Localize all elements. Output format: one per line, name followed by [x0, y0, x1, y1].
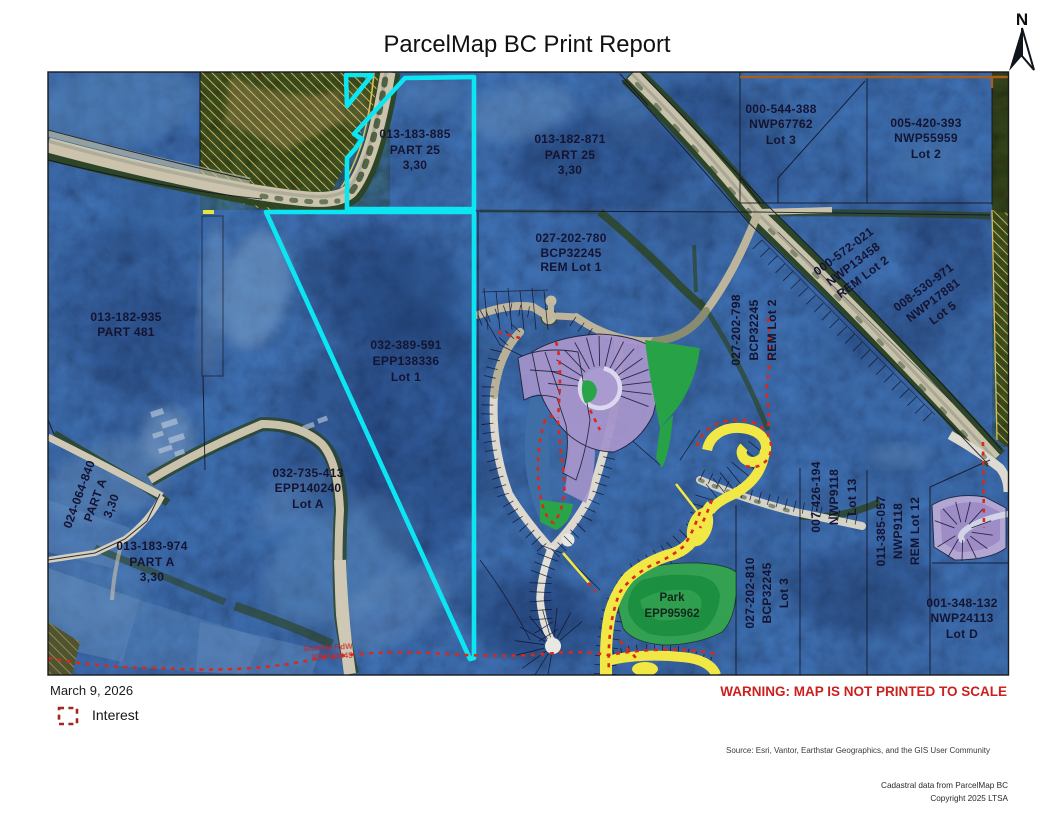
svg-text:001-348-132: 001-348-132 [926, 596, 997, 610]
svg-text:011-385-057: 011-385-057 [874, 496, 888, 567]
svg-text:BCP32245: BCP32245 [540, 246, 601, 260]
svg-text:EPP140240: EPP140240 [275, 481, 342, 495]
svg-text:Copyright 2025 LTSA: Copyright 2025 LTSA [930, 794, 1008, 803]
svg-text:Lot 2: Lot 2 [911, 147, 941, 161]
svg-text:027-202-798: 027-202-798 [729, 294, 743, 365]
svg-text:Lot D: Lot D [946, 627, 978, 641]
svg-text:Cadastral data from ParcelMap: Cadastral data from ParcelMap BC [881, 781, 1008, 790]
svg-text:Interest: Interest [92, 707, 139, 723]
svg-text:PART 25: PART 25 [545, 148, 596, 162]
svg-text:ParcelMap BC Print Report: ParcelMap BC Print Report [384, 31, 671, 58]
svg-text:NWP67762: NWP67762 [749, 117, 813, 131]
svg-text:013-183-885: 013-183-885 [379, 127, 450, 141]
svg-text:EPP95962: EPP95962 [645, 608, 700, 620]
svg-text:PART 481: PART 481 [97, 325, 155, 339]
svg-text:PART A: PART A [129, 555, 174, 569]
svg-text:EPP138336: EPP138336 [373, 354, 440, 368]
svg-text:NWP9118: NWP9118 [827, 469, 841, 525]
svg-text:013-182-935: 013-182-935 [90, 310, 161, 324]
svg-text:Lot 13: Lot 13 [845, 478, 859, 515]
svg-text:013-183-974: 013-183-974 [116, 539, 187, 553]
svg-text:000-544-388: 000-544-388 [745, 102, 816, 116]
svg-text:Lot 3: Lot 3 [766, 133, 796, 147]
svg-text:REM Lot 2: REM Lot 2 [765, 299, 779, 360]
svg-text:032-735-413: 032-735-413 [272, 466, 343, 480]
svg-text:WARNING: MAP IS NOT PRINTED TO: WARNING: MAP IS NOT PRINTED TO SCALE [720, 684, 1007, 699]
svg-text:BCP32245: BCP32245 [760, 562, 774, 623]
svg-text:Park: Park [660, 592, 686, 604]
svg-text:3,30: 3,30 [558, 163, 583, 177]
svg-text:3,30: 3,30 [140, 570, 165, 584]
svg-text:N: N [1016, 10, 1028, 29]
svg-text:027-202-810: 027-202-810 [743, 557, 757, 628]
svg-text:March 9, 2026: March 9, 2026 [50, 683, 133, 698]
svg-text:027-202-780: 027-202-780 [535, 231, 606, 245]
svg-text:3,30: 3,30 [403, 158, 428, 172]
svg-text:Source: Esri, Vantor, Earthsta: Source: Esri, Vantor, Earthstar Geograph… [726, 746, 990, 755]
svg-text:NWP55959: NWP55959 [894, 131, 958, 145]
svg-text:005-420-393: 005-420-393 [890, 116, 961, 130]
svg-text:013-182-871: 013-182-871 [534, 132, 605, 146]
svg-text:007-426-194: 007-426-194 [809, 461, 823, 532]
svg-text:BCP32245: BCP32245 [747, 299, 761, 360]
svg-text:Lot 1: Lot 1 [391, 370, 421, 384]
svg-text:REM Lot 12: REM Lot 12 [908, 497, 922, 565]
svg-text:NWP24113: NWP24113 [930, 611, 993, 625]
svg-text:Lot A: Lot A [292, 497, 324, 511]
svg-text:032-389-591: 032-389-591 [370, 338, 441, 352]
svg-text:PART 25: PART 25 [390, 143, 441, 157]
svg-text:Lot 3: Lot 3 [777, 578, 791, 608]
svg-text:NWP9118: NWP9118 [891, 503, 905, 559]
svg-text:REM Lot 1: REM Lot 1 [540, 260, 601, 274]
